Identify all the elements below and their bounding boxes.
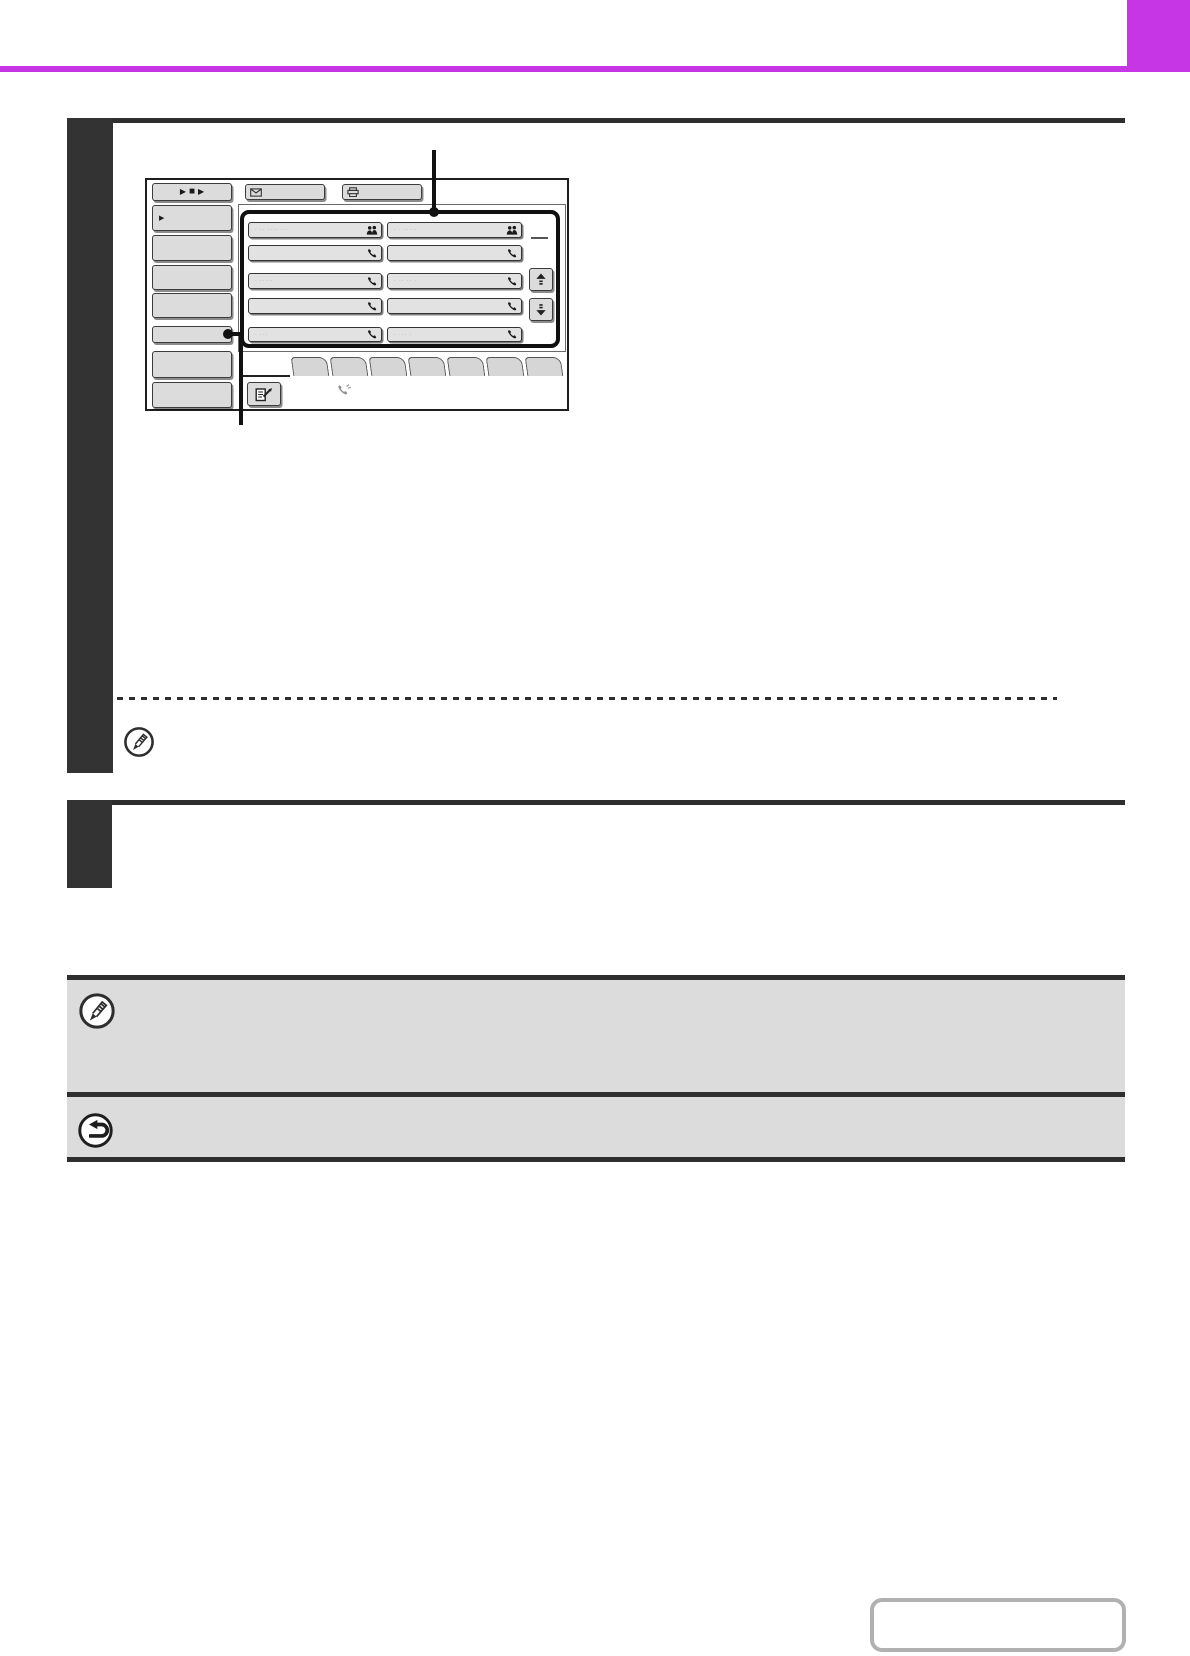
play-icon: ▶ — [198, 188, 204, 196]
phone-icon — [367, 329, 378, 340]
note-box-2 — [67, 1097, 1125, 1157]
global-address-search-button[interactable] — [342, 184, 422, 200]
stop-icon: ■ — [189, 187, 195, 197]
play-icon: ▶ — [180, 188, 186, 196]
page-indicator-line — [531, 237, 548, 239]
header-accent-bar — [0, 66, 1190, 72]
one-touch-key[interactable] — [248, 298, 382, 314]
selected-tab-underline — [240, 375, 290, 377]
phone-icon — [507, 301, 518, 312]
left-menu-button-6[interactable] — [152, 351, 232, 378]
key-label: · ·· ···· ··· — [249, 227, 366, 233]
phone-icon — [507, 276, 518, 287]
index-tab-1[interactable] — [291, 357, 330, 376]
section2-sidebar-block — [67, 800, 112, 888]
group-icon — [506, 225, 518, 236]
one-touch-key[interactable] — [248, 245, 382, 261]
index-tab-2[interactable] — [330, 357, 369, 376]
one-touch-key[interactable]: · ·· ·· · — [387, 273, 522, 289]
section1-sidebar-block — [67, 118, 113, 773]
pencil-note-icon — [78, 992, 116, 1030]
phone-icon — [507, 248, 518, 259]
key-label: · · ····· — [388, 227, 506, 233]
callout-line-2-v — [239, 332, 243, 425]
envelope-icon — [250, 188, 262, 197]
left-menu-button-3[interactable] — [152, 265, 232, 290]
phone-icon — [367, 276, 378, 287]
off-hook-icon — [337, 383, 352, 396]
left-menu-button-7[interactable] — [152, 382, 232, 408]
arrow-up-icon — [533, 272, 549, 287]
one-touch-key[interactable]: · · ····· — [387, 222, 522, 238]
job-status-button[interactable]: ▶ ■ ▶ — [152, 183, 232, 201]
header-accent-square — [1127, 0, 1190, 72]
menu-arrow-icon: ▶ — [159, 215, 164, 222]
note-box-1 — [67, 980, 1125, 1092]
index-tab-4[interactable] — [408, 357, 447, 376]
section1-rule — [67, 118, 1125, 123]
section2-rule — [67, 800, 1125, 805]
left-menu-button-5[interactable] — [152, 326, 232, 343]
phone-icon — [367, 248, 378, 259]
one-touch-key[interactable] — [387, 298, 522, 314]
index-tab-3[interactable] — [369, 357, 408, 376]
phone-icon — [367, 301, 378, 312]
left-menu-button-1[interactable]: ▶ — [152, 205, 232, 231]
key-label: · ··· · — [388, 332, 507, 338]
one-touch-key[interactable]: · ··· — [248, 327, 382, 342]
key-label: · ····· — [249, 278, 367, 284]
index-tab-5[interactable] — [447, 357, 486, 376]
contents-button[interactable] — [870, 1598, 1126, 1652]
scroll-up-button[interactable] — [529, 268, 553, 291]
group-icon — [366, 225, 378, 236]
index-tab-7[interactable] — [525, 357, 564, 376]
left-menu-button-4[interactable] — [152, 293, 232, 318]
one-touch-key[interactable] — [387, 245, 522, 261]
key-label: · ··· — [249, 332, 367, 338]
index-tab-6[interactable] — [486, 357, 525, 376]
callout-line-1 — [432, 150, 436, 212]
phone-icon — [507, 329, 518, 340]
manual-page: ▶ ■ ▶ ▶ — [0, 0, 1190, 1656]
arrow-down-icon — [533, 302, 549, 317]
one-touch-key[interactable]: · ·· ···· ··· — [248, 222, 382, 238]
note-box-bottom-border — [67, 1157, 1125, 1162]
scroll-down-button[interactable] — [529, 298, 553, 321]
dotted-separator — [117, 697, 1057, 700]
return-arrow-icon — [77, 1112, 114, 1149]
touch-panel-screen: ▶ ■ ▶ ▶ — [145, 178, 569, 411]
pencil-note-icon — [123, 726, 155, 758]
printer-icon — [347, 187, 359, 197]
one-touch-key[interactable]: · ····· — [248, 273, 382, 289]
left-menu-button-2[interactable] — [152, 235, 232, 261]
callout-dot-1 — [429, 207, 439, 217]
address-control-button[interactable] — [247, 382, 281, 406]
address-review-button[interactable] — [245, 184, 325, 200]
document-edit-icon — [255, 387, 273, 402]
one-touch-key[interactable]: · ··· · — [387, 327, 522, 342]
key-label: · ·· ·· · — [388, 278, 507, 284]
